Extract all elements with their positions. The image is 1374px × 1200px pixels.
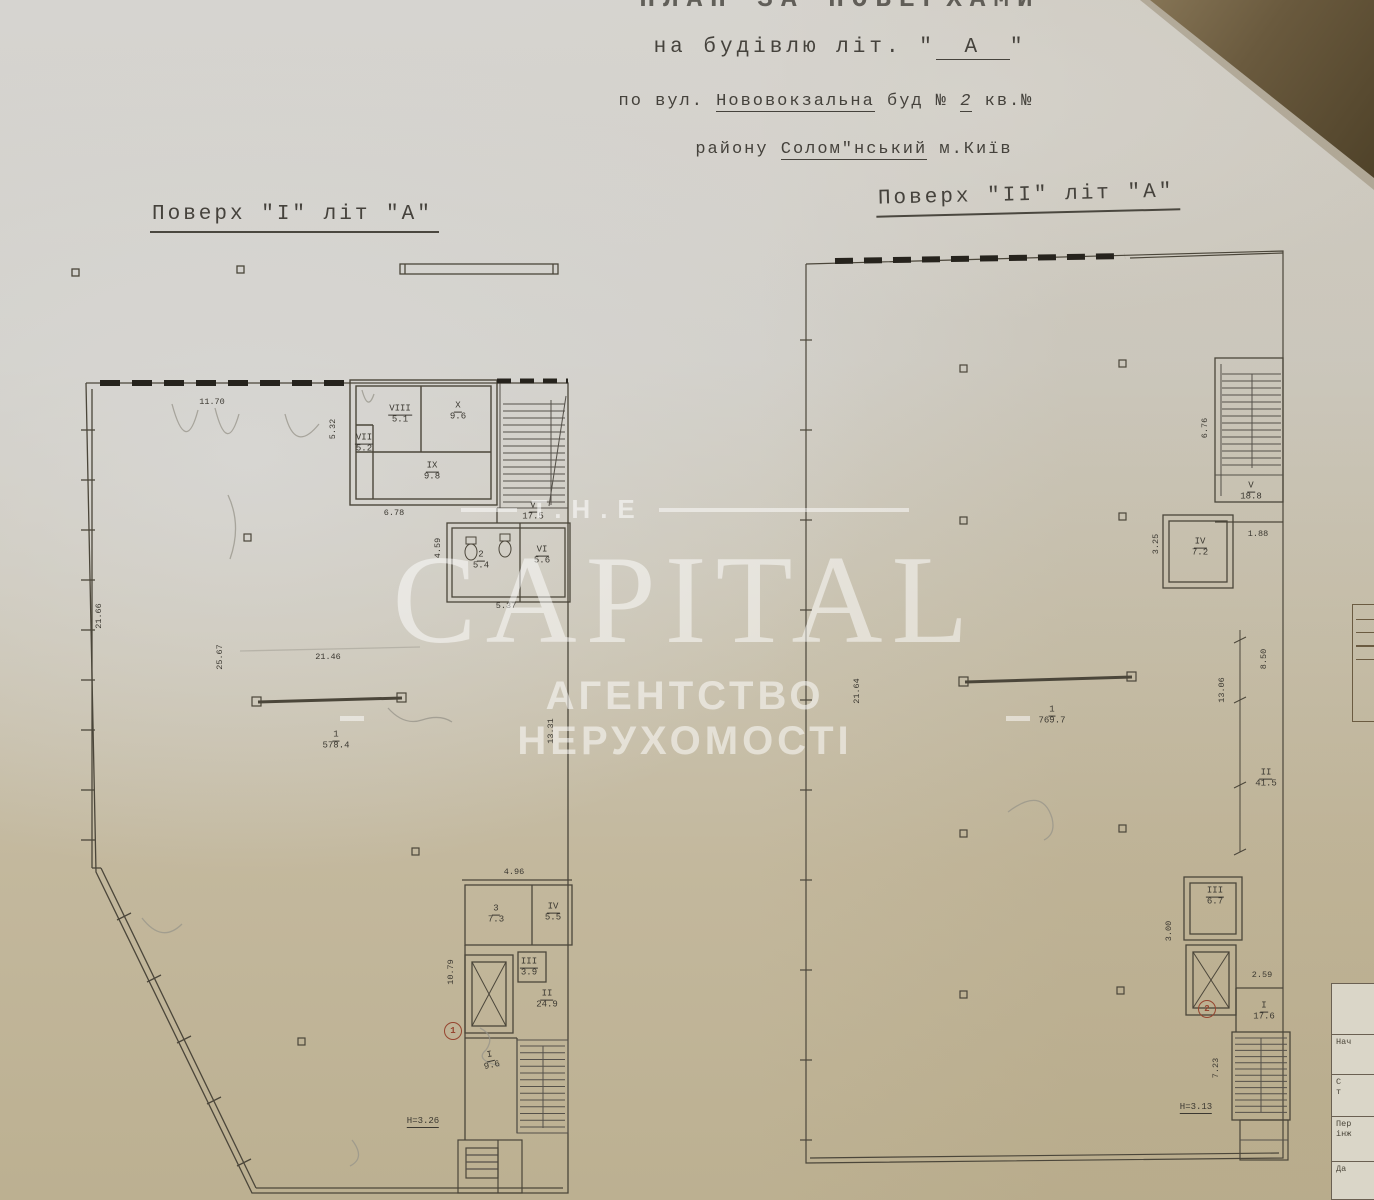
building-line: на будівлю літ. "А" [560,36,1120,60]
document-header: ПЛАН ЗА ПОВЕРХАМИ на будівлю літ. "А" по… [560,0,1120,180]
dimension: 11.70 [199,398,225,407]
room-label: IV7.2 [1192,538,1208,559]
room-label: II41.5 [1255,769,1277,790]
title-block-cell: С т [1332,1074,1374,1116]
plan1-beam [244,534,419,1045]
room-label-main-hall: 1769.7 [1038,706,1065,727]
room-label: III3.9 [520,958,538,979]
room-label: VII5.2 [355,434,373,455]
dimension: 21.46 [315,653,341,662]
building-number: 2 [960,92,972,112]
room-label: X9.6 [450,402,466,423]
room-label: II24.9 [536,990,558,1011]
room-label: 37.3 [488,905,504,926]
dimension: 10.79 [447,959,456,985]
ceiling-height-note: H=3.26 [407,1116,439,1128]
district-name: Солом"нський [781,140,927,160]
plan1-entrance [458,1140,522,1193]
street-name: Нововокзальна [716,92,875,112]
room-label: V18.8 [1240,482,1262,503]
plan1-stairs-south [517,1040,568,1133]
title-block-table: Нач С т Пер інж Да [1331,983,1374,1200]
plan2-beam [959,360,1136,998]
dimension: 3.00 [1165,921,1174,941]
room-label: V17.5 [522,502,544,523]
room-label: VI5.6 [534,546,550,567]
dimension: 2.59 [1252,971,1272,980]
dimension: 5.32 [329,419,338,439]
entrance-marker: 2 [1198,1000,1216,1018]
room-label: 25.4 [473,551,489,572]
title-block-cell: Нач [1332,1034,1374,1074]
dimension: 6.78 [384,509,404,518]
dimension: 5.37 [496,602,516,611]
entrance-marker: 1 [444,1022,462,1040]
plan2-dim-line [1234,630,1246,855]
dimension: 21.64 [853,678,862,704]
dimension: 8.50 [1260,649,1269,669]
plan1-stairs-north [497,383,568,508]
room-label: IV5.5 [545,903,561,924]
dimension: 6.76 [1201,418,1210,438]
hatched-walls [100,256,1125,383]
plan2-stairs-south [1232,1032,1290,1160]
scanned-floorplan-page: ПЛАН ЗА ПОВЕРХАМИ на будівлю літ. "А" по… [0,0,1374,1200]
dimension: 25.67 [216,644,225,670]
stamp-box [1352,604,1374,722]
pencil-marks [142,390,1053,1166]
street-line: по вул. Нововокзальна буд № 2 кв.№ [546,92,1106,111]
room-label: VIII5.1 [388,405,412,426]
room-label-main-hall: 1578.4 [322,731,349,752]
district-line: району Солом"нський м.Київ [574,140,1134,159]
document-title: ПЛАН ЗА ПОВЕРХАМИ [560,0,1120,14]
plan1-washrooms [447,508,570,602]
dimension: 4.59 [434,538,443,558]
room-label: III6.7 [1206,887,1224,908]
plan1-title: Поверх "I" літ "А" [150,203,439,233]
title-block-cell [1332,984,1374,1034]
title-block-cell: Пер інж [1332,1116,1374,1161]
dimension: 3.25 [1152,534,1161,554]
dimension: 13.31 [547,718,556,744]
dimension: 13.06 [1218,677,1227,703]
dimension: 7.23 [1212,1058,1221,1078]
room-label: IX9.8 [424,462,440,483]
title-block-cell: Да [1332,1161,1374,1199]
dimension: 21.66 [95,603,104,629]
building-letter: А [936,36,1010,60]
dimension: 1.88 [1248,530,1268,539]
room-label: I17.6 [1253,1002,1275,1023]
dimension: 4.96 [504,868,524,877]
ceiling-height-note: H=3.13 [1180,1102,1212,1114]
